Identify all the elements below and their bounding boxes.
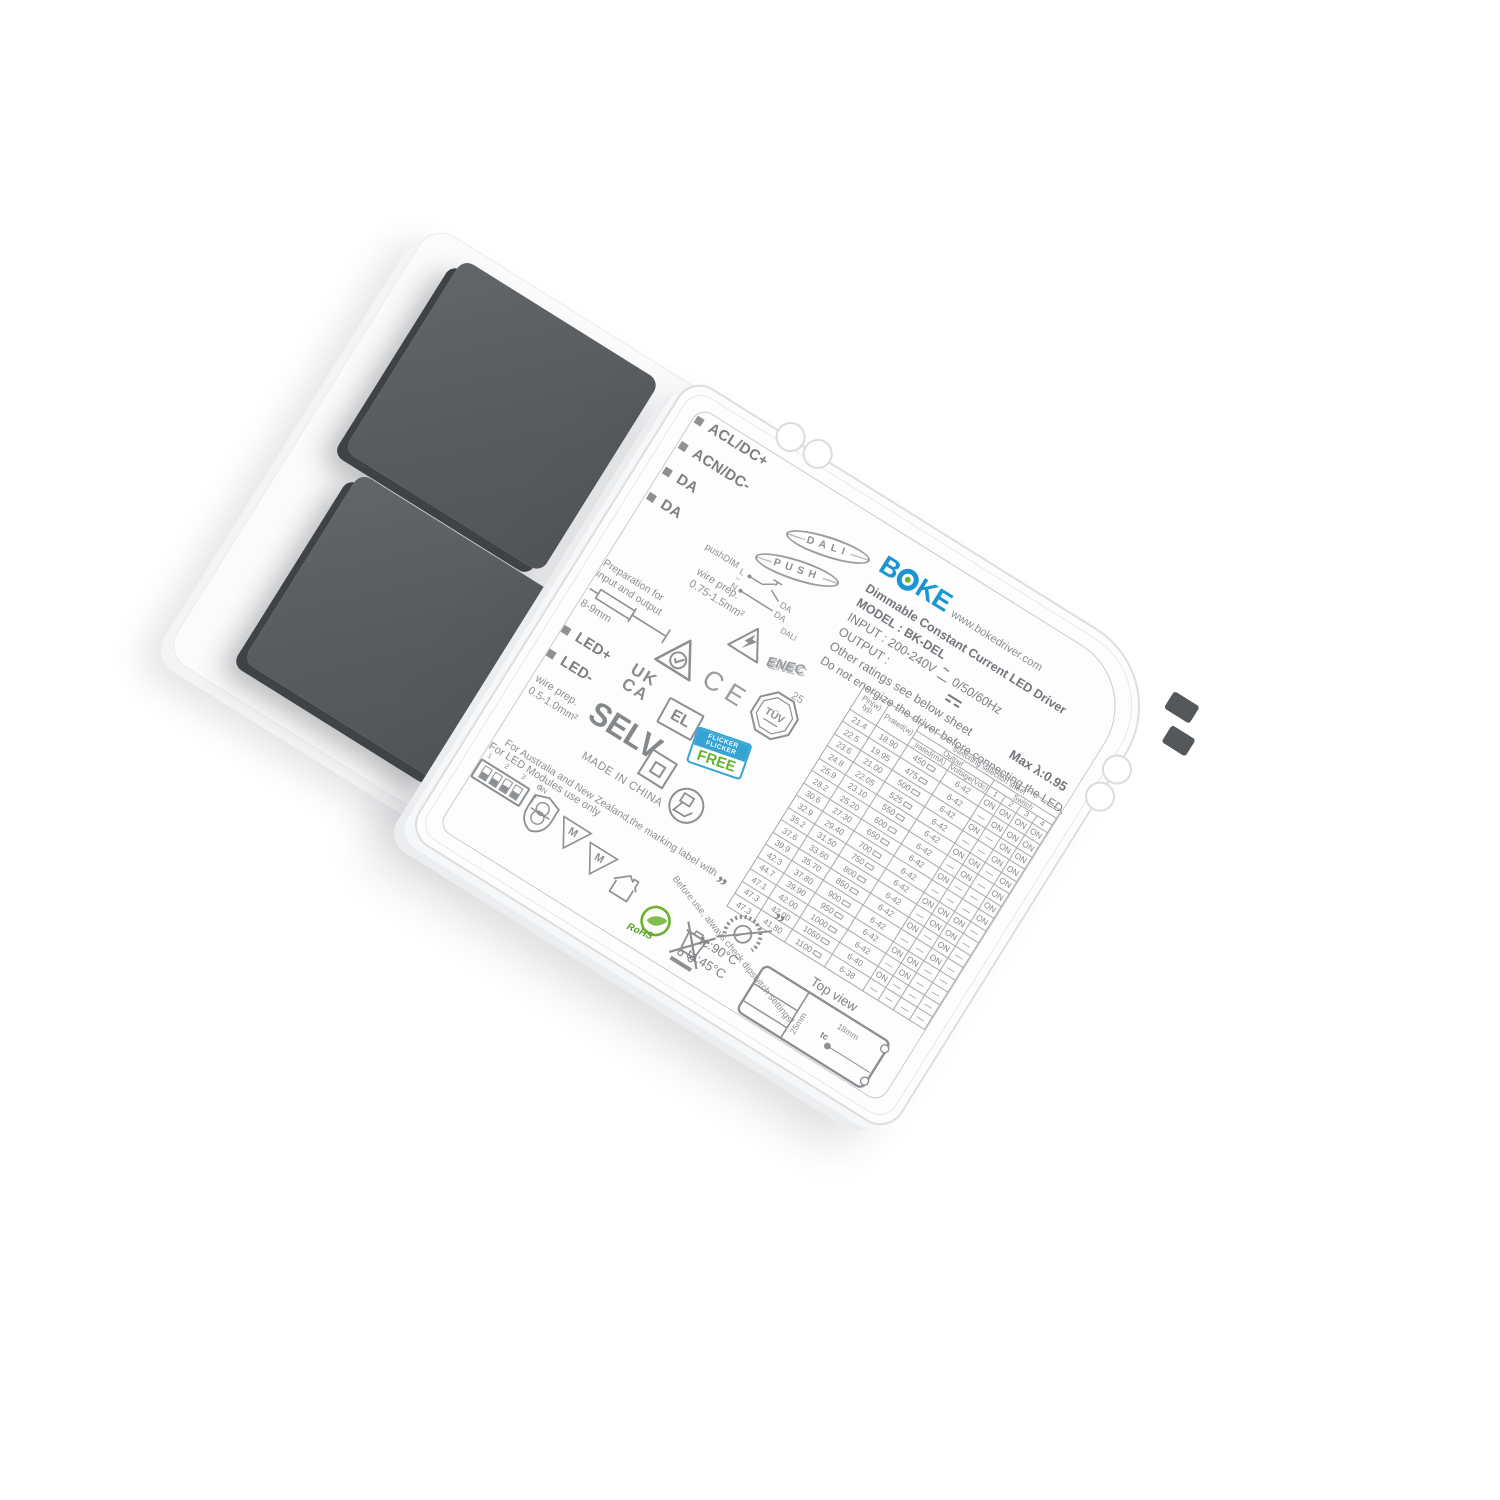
checkbox-icon [856, 874, 866, 883]
terminal-square-icon [560, 625, 571, 636]
flicker-free-badge: FLICKERFLICKER FREE [686, 726, 753, 781]
terminal-label: DA [660, 463, 700, 496]
terminal-square-icon [662, 466, 673, 477]
checkbox-icon [812, 949, 822, 958]
terminal-square-icon [678, 441, 689, 452]
checkbox-icon [849, 887, 859, 896]
dc-symbol-icon [944, 693, 964, 710]
terminal-label: DA [644, 489, 684, 522]
checkbox-icon [902, 801, 912, 810]
tuv-text: TÜV [762, 704, 787, 726]
checkbox-icon [910, 788, 920, 797]
svg-text:M: M [566, 825, 580, 840]
pushdim-label: pushDIM [703, 542, 740, 570]
push-badge-text: PUSH [770, 557, 824, 583]
terminal-square-icon [694, 416, 705, 427]
svg-text:~: ~ [733, 574, 742, 584]
checkbox-icon [925, 764, 935, 773]
checkbox-icon [833, 911, 843, 920]
dim-18mm: 18mm [835, 1021, 860, 1042]
ukca-mark: UKCA [618, 660, 661, 705]
checkbox-icon [887, 825, 897, 834]
checkbox-icon [864, 862, 874, 871]
checkbox-icon [918, 776, 928, 785]
checkbox-icon [828, 925, 838, 934]
el-text: EL [668, 707, 694, 731]
ac-symbol-icon [935, 667, 953, 684]
terminal-square-icon [546, 649, 557, 660]
checkbox-icon [872, 850, 882, 859]
open-quote: „ [715, 861, 738, 888]
independent-driver-icon [660, 780, 712, 832]
checkbox-icon [879, 838, 889, 847]
rohs-text: RoHS [625, 921, 655, 942]
pushdim-dali: DALI [779, 626, 799, 643]
svg-text:M: M [592, 851, 606, 866]
checkbox-icon [895, 813, 905, 822]
tc-point-label: tc [818, 1030, 830, 1043]
ce-mark: CE [698, 665, 756, 715]
snap-clip-1 [1164, 691, 1200, 724]
checkbox-icon [820, 937, 830, 946]
product-photo: ACL/DC+ ACN/DC- DA DA DALI PUSH pushDIM [0, 0, 1500, 1500]
dali-badge-text: DALI [803, 535, 852, 560]
terminal-square-icon [646, 492, 657, 503]
terminal-text: DA [673, 471, 701, 497]
snap-clip-2 [1161, 725, 1195, 757]
terminal-text: DA [657, 496, 685, 522]
checkbox-icon [841, 899, 851, 908]
